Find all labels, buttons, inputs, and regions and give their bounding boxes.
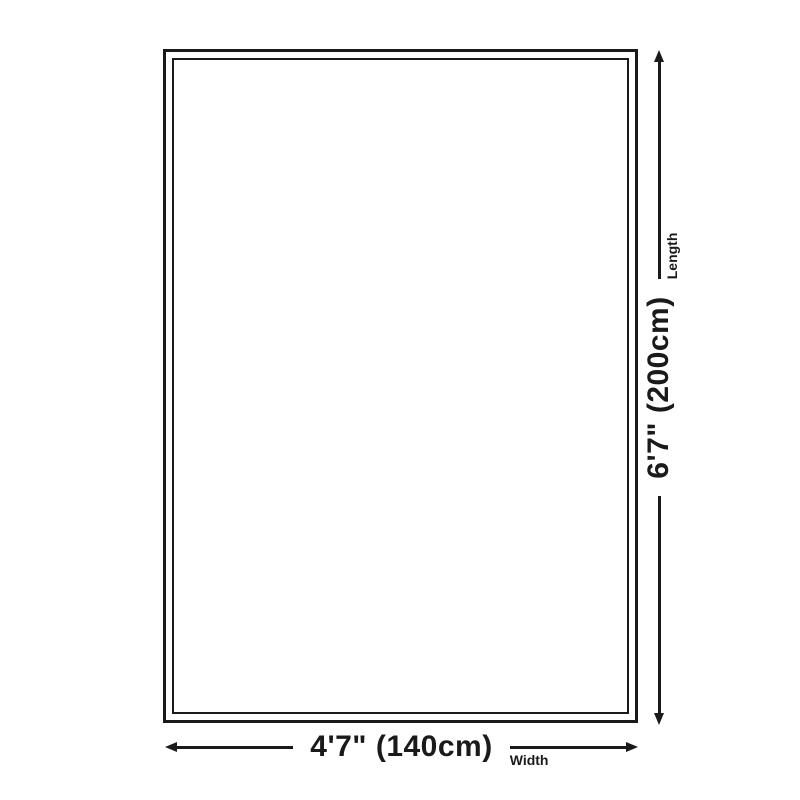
arrow-down-icon	[654, 713, 664, 725]
arrow-up-icon	[654, 50, 664, 62]
dimension-line	[510, 746, 626, 749]
length-value: 6'7" (200cm)	[644, 279, 674, 495]
length-dimension: 6'7" (200cm) Length	[639, 50, 679, 725]
length-label: Length	[665, 233, 679, 280]
dimension-line	[177, 746, 293, 749]
width-arrow-right-segment: Width	[510, 727, 638, 767]
width-value: 4'7" (140cm)	[293, 732, 509, 762]
width-label: Width	[510, 753, 549, 767]
width-arrow-left-segment	[165, 727, 293, 767]
length-arrow-down-segment	[639, 496, 679, 725]
rug-outline	[163, 49, 638, 723]
dimension-line	[658, 62, 661, 279]
rug-inner-outline	[172, 58, 629, 714]
width-dimension: 4'7" (140cm) Width	[165, 727, 638, 767]
rug-size-diagram: 4'7" (140cm) Width 6'7" (200cm) Length	[0, 0, 800, 800]
arrow-left-icon	[165, 742, 177, 752]
length-arrow-up-segment: Length	[639, 50, 679, 279]
dimension-line	[658, 496, 661, 713]
arrow-right-icon	[626, 742, 638, 752]
